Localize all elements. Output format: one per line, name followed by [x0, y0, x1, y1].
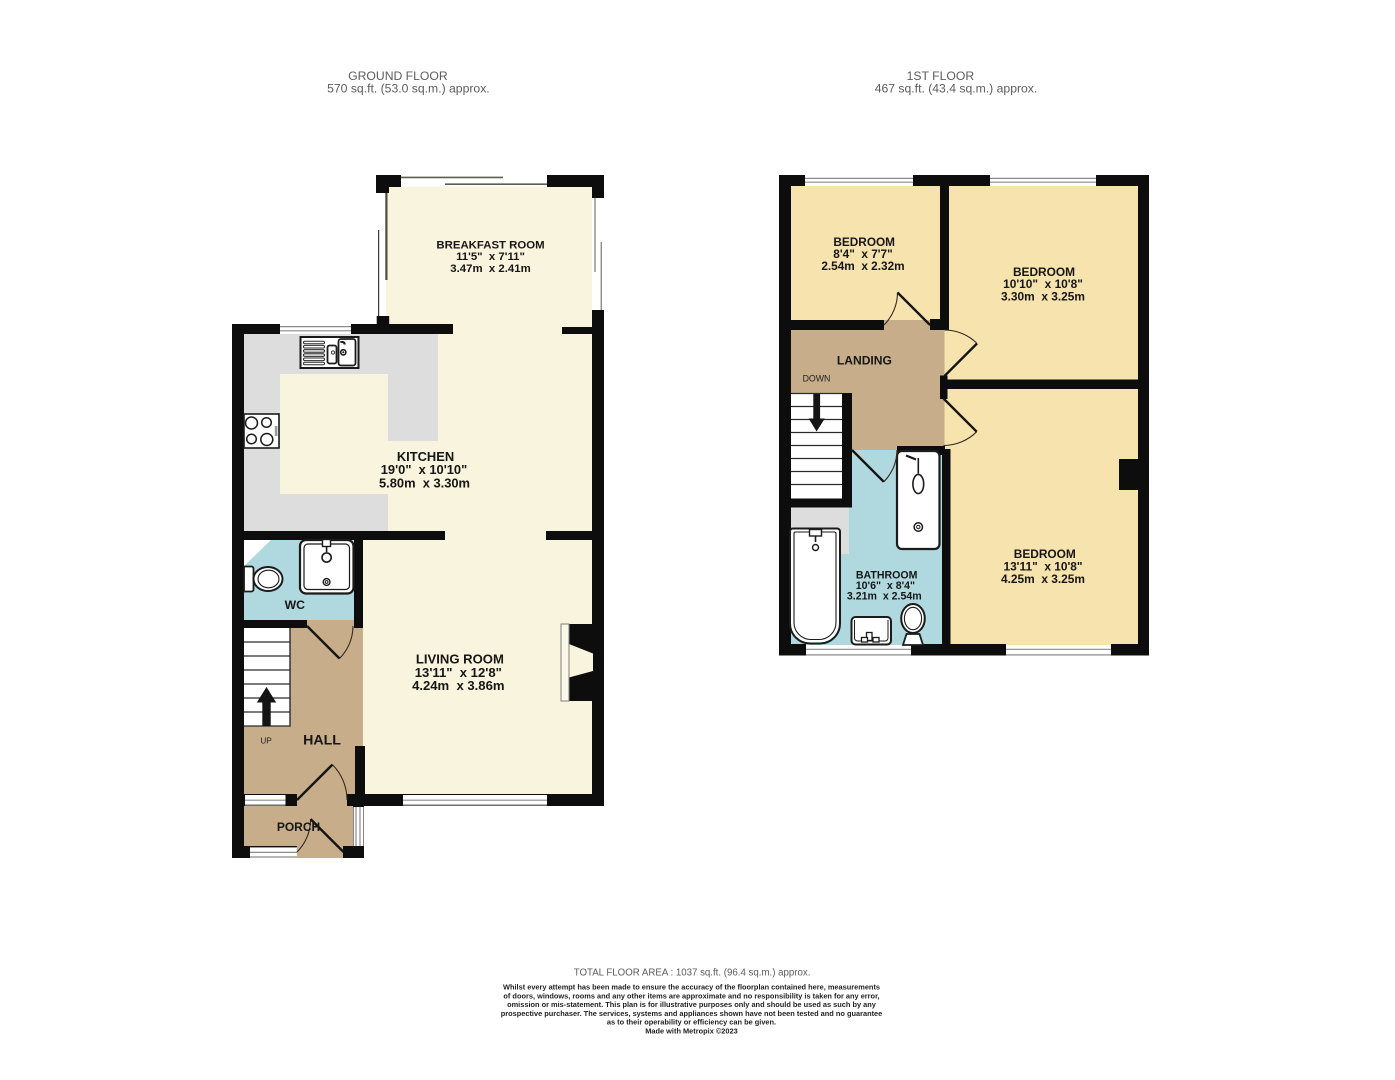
svg-text:5.80m x 3.30m: 5.80m x 3.30m: [379, 475, 470, 490]
svg-text:LANDING: LANDING: [837, 354, 892, 368]
svg-text:as to their operability or eff: as to their operability or efficiency ca…: [607, 1018, 776, 1027]
svg-text:467 sq.ft. (43.4 sq.m.) approx: 467 sq.ft. (43.4 sq.m.) approx.: [875, 81, 1038, 95]
svg-text:WC: WC: [285, 598, 306, 612]
svg-text:3.30m x 3.25m: 3.30m x 3.25m: [1001, 289, 1085, 303]
svg-text:11'5" x 7'11": 11'5" x 7'11": [456, 251, 525, 263]
svg-text:4.24m x 3.86m: 4.24m x 3.86m: [412, 678, 504, 693]
svg-text:TOTAL FLOOR AREA : 1037 sq.ft.: TOTAL FLOOR AREA : 1037 sq.ft. (96.4 sq.…: [574, 968, 811, 979]
svg-text:2.54m x 2.32m: 2.54m x 2.32m: [821, 259, 904, 273]
svg-text:PORCH: PORCH: [277, 820, 320, 834]
svg-text:UP: UP: [260, 737, 272, 746]
svg-text:3.21m x 2.54m: 3.21m x 2.54m: [847, 591, 922, 603]
svg-text:Whilst every attempt has been: Whilst every attempt has been made to en…: [503, 983, 880, 992]
svg-text:prospective purchaser. The ser: prospective purchaser. The services, sys…: [501, 1009, 883, 1018]
svg-text:DOWN: DOWN: [803, 374, 831, 384]
svg-text:of doors, windows, rooms and a: of doors, windows, rooms and any other i…: [503, 991, 879, 1000]
svg-text:3.47m x 2.41m: 3.47m x 2.41m: [450, 263, 530, 275]
svg-text:omission or mis-statement. Thi: omission or mis-statement. This plan is …: [507, 1000, 877, 1009]
svg-text:4.25m x 3.25m: 4.25m x 3.25m: [1001, 572, 1085, 586]
svg-text:Made with Metropix ©2023: Made with Metropix ©2023: [645, 1027, 738, 1036]
svg-text:HALL: HALL: [303, 733, 341, 749]
svg-text:BREAKFAST ROOM: BREAKFAST ROOM: [436, 240, 544, 252]
svg-text:570 sq.ft. (53.0 sq.m.) approx: 570 sq.ft. (53.0 sq.m.) approx.: [327, 81, 490, 95]
